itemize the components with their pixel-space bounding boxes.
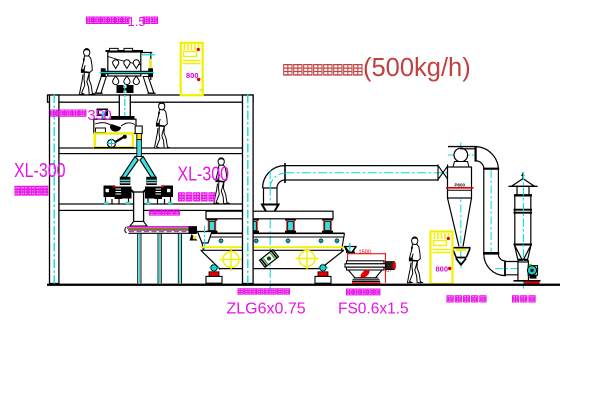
svg-text:P600: P600 — [455, 182, 466, 187]
svg-text:FS0.6x1.5: FS0.6x1.5 — [338, 301, 409, 318]
svg-text:1500: 1500 — [359, 249, 371, 255]
svg-text:800: 800 — [186, 71, 199, 80]
svg-text:XL-300: XL-300 — [178, 162, 230, 185]
svg-text:800: 800 — [436, 265, 449, 274]
svg-text:ZLG6x0.75: ZLG6x0.75 — [227, 301, 306, 318]
svg-text:350: 350 — [88, 108, 112, 124]
svg-text:(500kg/h): (500kg/h) — [363, 54, 471, 82]
svg-text:XL-300: XL-300 — [14, 158, 66, 181]
